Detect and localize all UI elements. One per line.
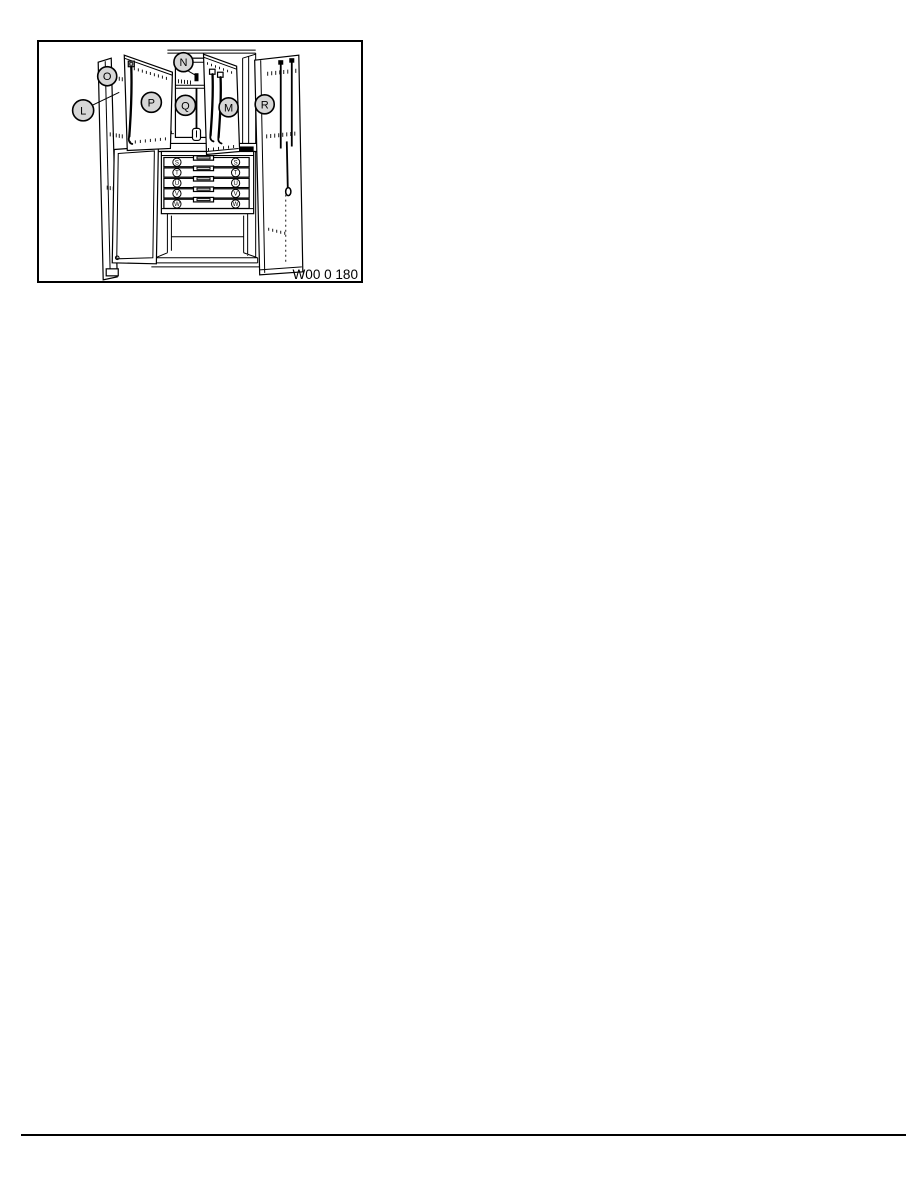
callout-r: R bbox=[255, 95, 274, 114]
lower-rod bbox=[287, 141, 288, 187]
drawer-rows: S S T T bbox=[164, 156, 249, 209]
right-outer-door bbox=[255, 55, 303, 275]
strap-hook bbox=[128, 61, 134, 67]
drawer-label-u-left: U bbox=[175, 181, 179, 187]
drawer-label-t-left: T bbox=[175, 171, 179, 177]
drawer-label-v-right: V bbox=[234, 192, 238, 198]
figure-number: W00 0 180 bbox=[293, 267, 358, 281]
drawer-w: W W bbox=[164, 197, 249, 208]
figure-box: S S T T bbox=[37, 40, 363, 283]
callout-o: O bbox=[98, 67, 117, 86]
drawer-v: V V bbox=[164, 187, 249, 198]
drawer-label-s-left: S bbox=[175, 160, 179, 166]
lower-left-door bbox=[112, 146, 158, 263]
drawer-label-t-right: T bbox=[234, 171, 238, 177]
callout-letter-r: R bbox=[261, 99, 269, 111]
drawer-u: U U bbox=[164, 177, 249, 188]
drawer-label-w-right: W bbox=[233, 202, 239, 208]
drawer-label-w-left: W bbox=[174, 202, 180, 208]
callout-letter-o: O bbox=[103, 71, 112, 83]
callout-n: N bbox=[174, 53, 193, 72]
left-door-foot bbox=[106, 269, 118, 276]
callout-l: L bbox=[73, 100, 94, 121]
callout-letter-p: P bbox=[148, 97, 155, 109]
callout-letter-l: L bbox=[80, 105, 86, 117]
callout-letter-q: Q bbox=[181, 100, 190, 112]
callout-letter-m: M bbox=[224, 102, 233, 114]
callout-letter-n: N bbox=[179, 57, 187, 69]
drawer-label-s-right: S bbox=[234, 160, 238, 166]
drawer-label-v-left: V bbox=[175, 192, 179, 198]
drawer-s: S S bbox=[164, 156, 249, 167]
tool-cabinet-illustration: S S T T bbox=[39, 42, 361, 281]
drawer-t: T T bbox=[164, 166, 249, 177]
callout-p: P bbox=[141, 92, 161, 112]
callout-q: Q bbox=[175, 95, 195, 115]
callout-m: M bbox=[219, 98, 238, 117]
manual-page: S S T T bbox=[0, 0, 918, 1188]
footer-divider bbox=[21, 1134, 906, 1136]
drawer-label-u-right: U bbox=[233, 181, 237, 187]
